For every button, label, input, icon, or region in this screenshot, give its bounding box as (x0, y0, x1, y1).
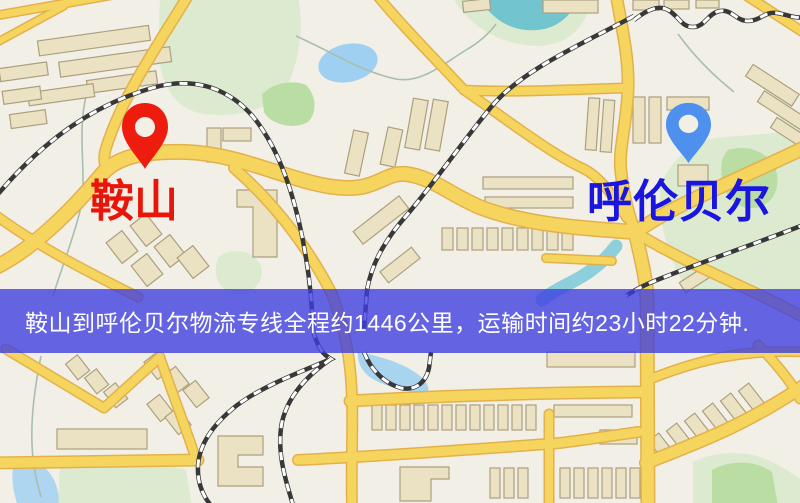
origin-marker-pin-icon (121, 102, 169, 170)
destination-marker-pin-icon (665, 102, 712, 164)
map-canvas[interactable]: 鞍山 呼伦贝尔 鞍山到呼伦贝尔物流专线全程约1446公里，运输时间约23小时22… (0, 0, 800, 503)
origin-marker[interactable] (121, 102, 169, 170)
origin-label: 鞍山 (90, 180, 178, 224)
lake (315, 38, 382, 88)
map-base (0, 0, 800, 503)
destination-marker[interactable] (665, 102, 712, 164)
destination-label: 呼伦贝尔 (587, 179, 771, 224)
route-banner-text: 鞍山到呼伦贝尔物流专线全程约1446公里，运输时间约23小时22分钟. (25, 304, 749, 338)
route-banner: 鞍山到呼伦贝尔物流专线全程约1446公里，运输时间约23小时22分钟. (0, 289, 800, 353)
